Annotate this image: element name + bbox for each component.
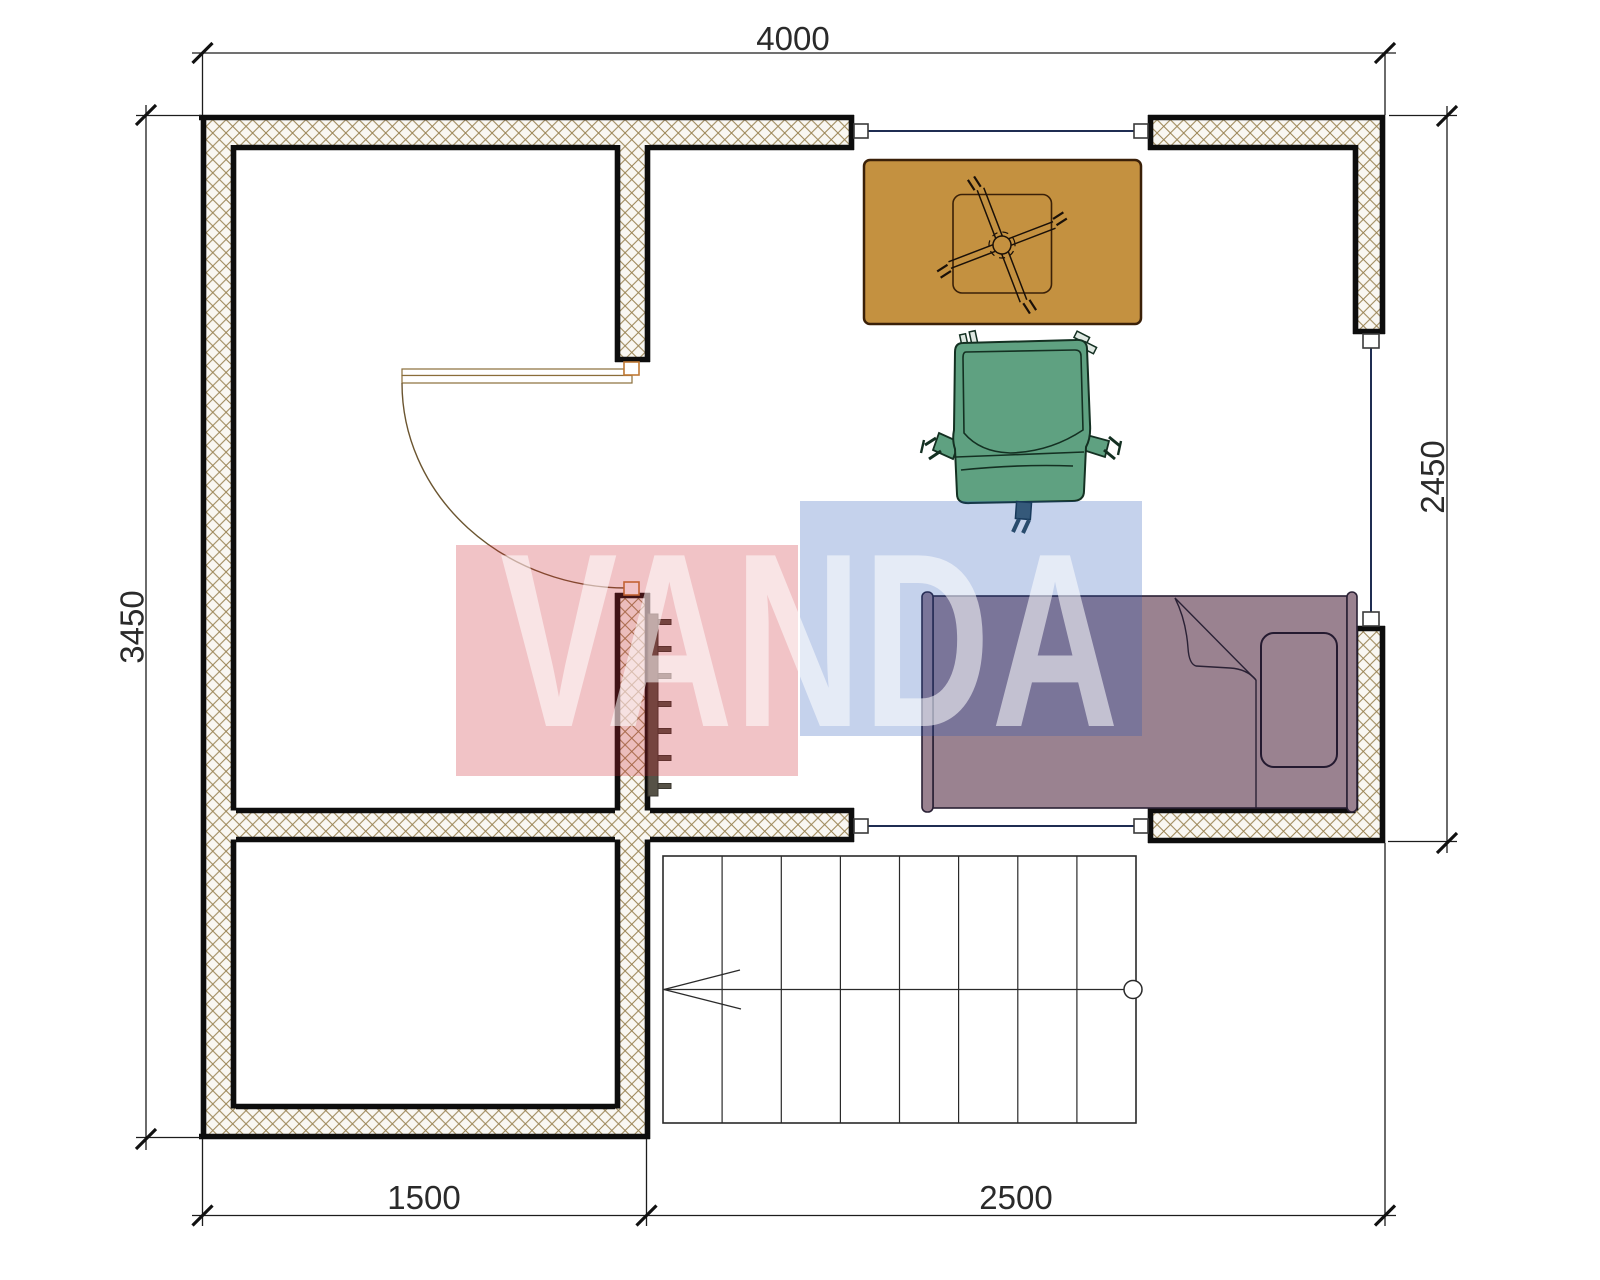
svg-text:2500: 2500 — [979, 1179, 1052, 1216]
svg-text:2450: 2450 — [1414, 440, 1451, 513]
svg-text:VANDA: VANDA — [500, 501, 1120, 779]
svg-text:4000: 4000 — [756, 20, 829, 57]
svg-text:1500: 1500 — [387, 1179, 460, 1216]
svg-text:3450: 3450 — [114, 590, 151, 663]
